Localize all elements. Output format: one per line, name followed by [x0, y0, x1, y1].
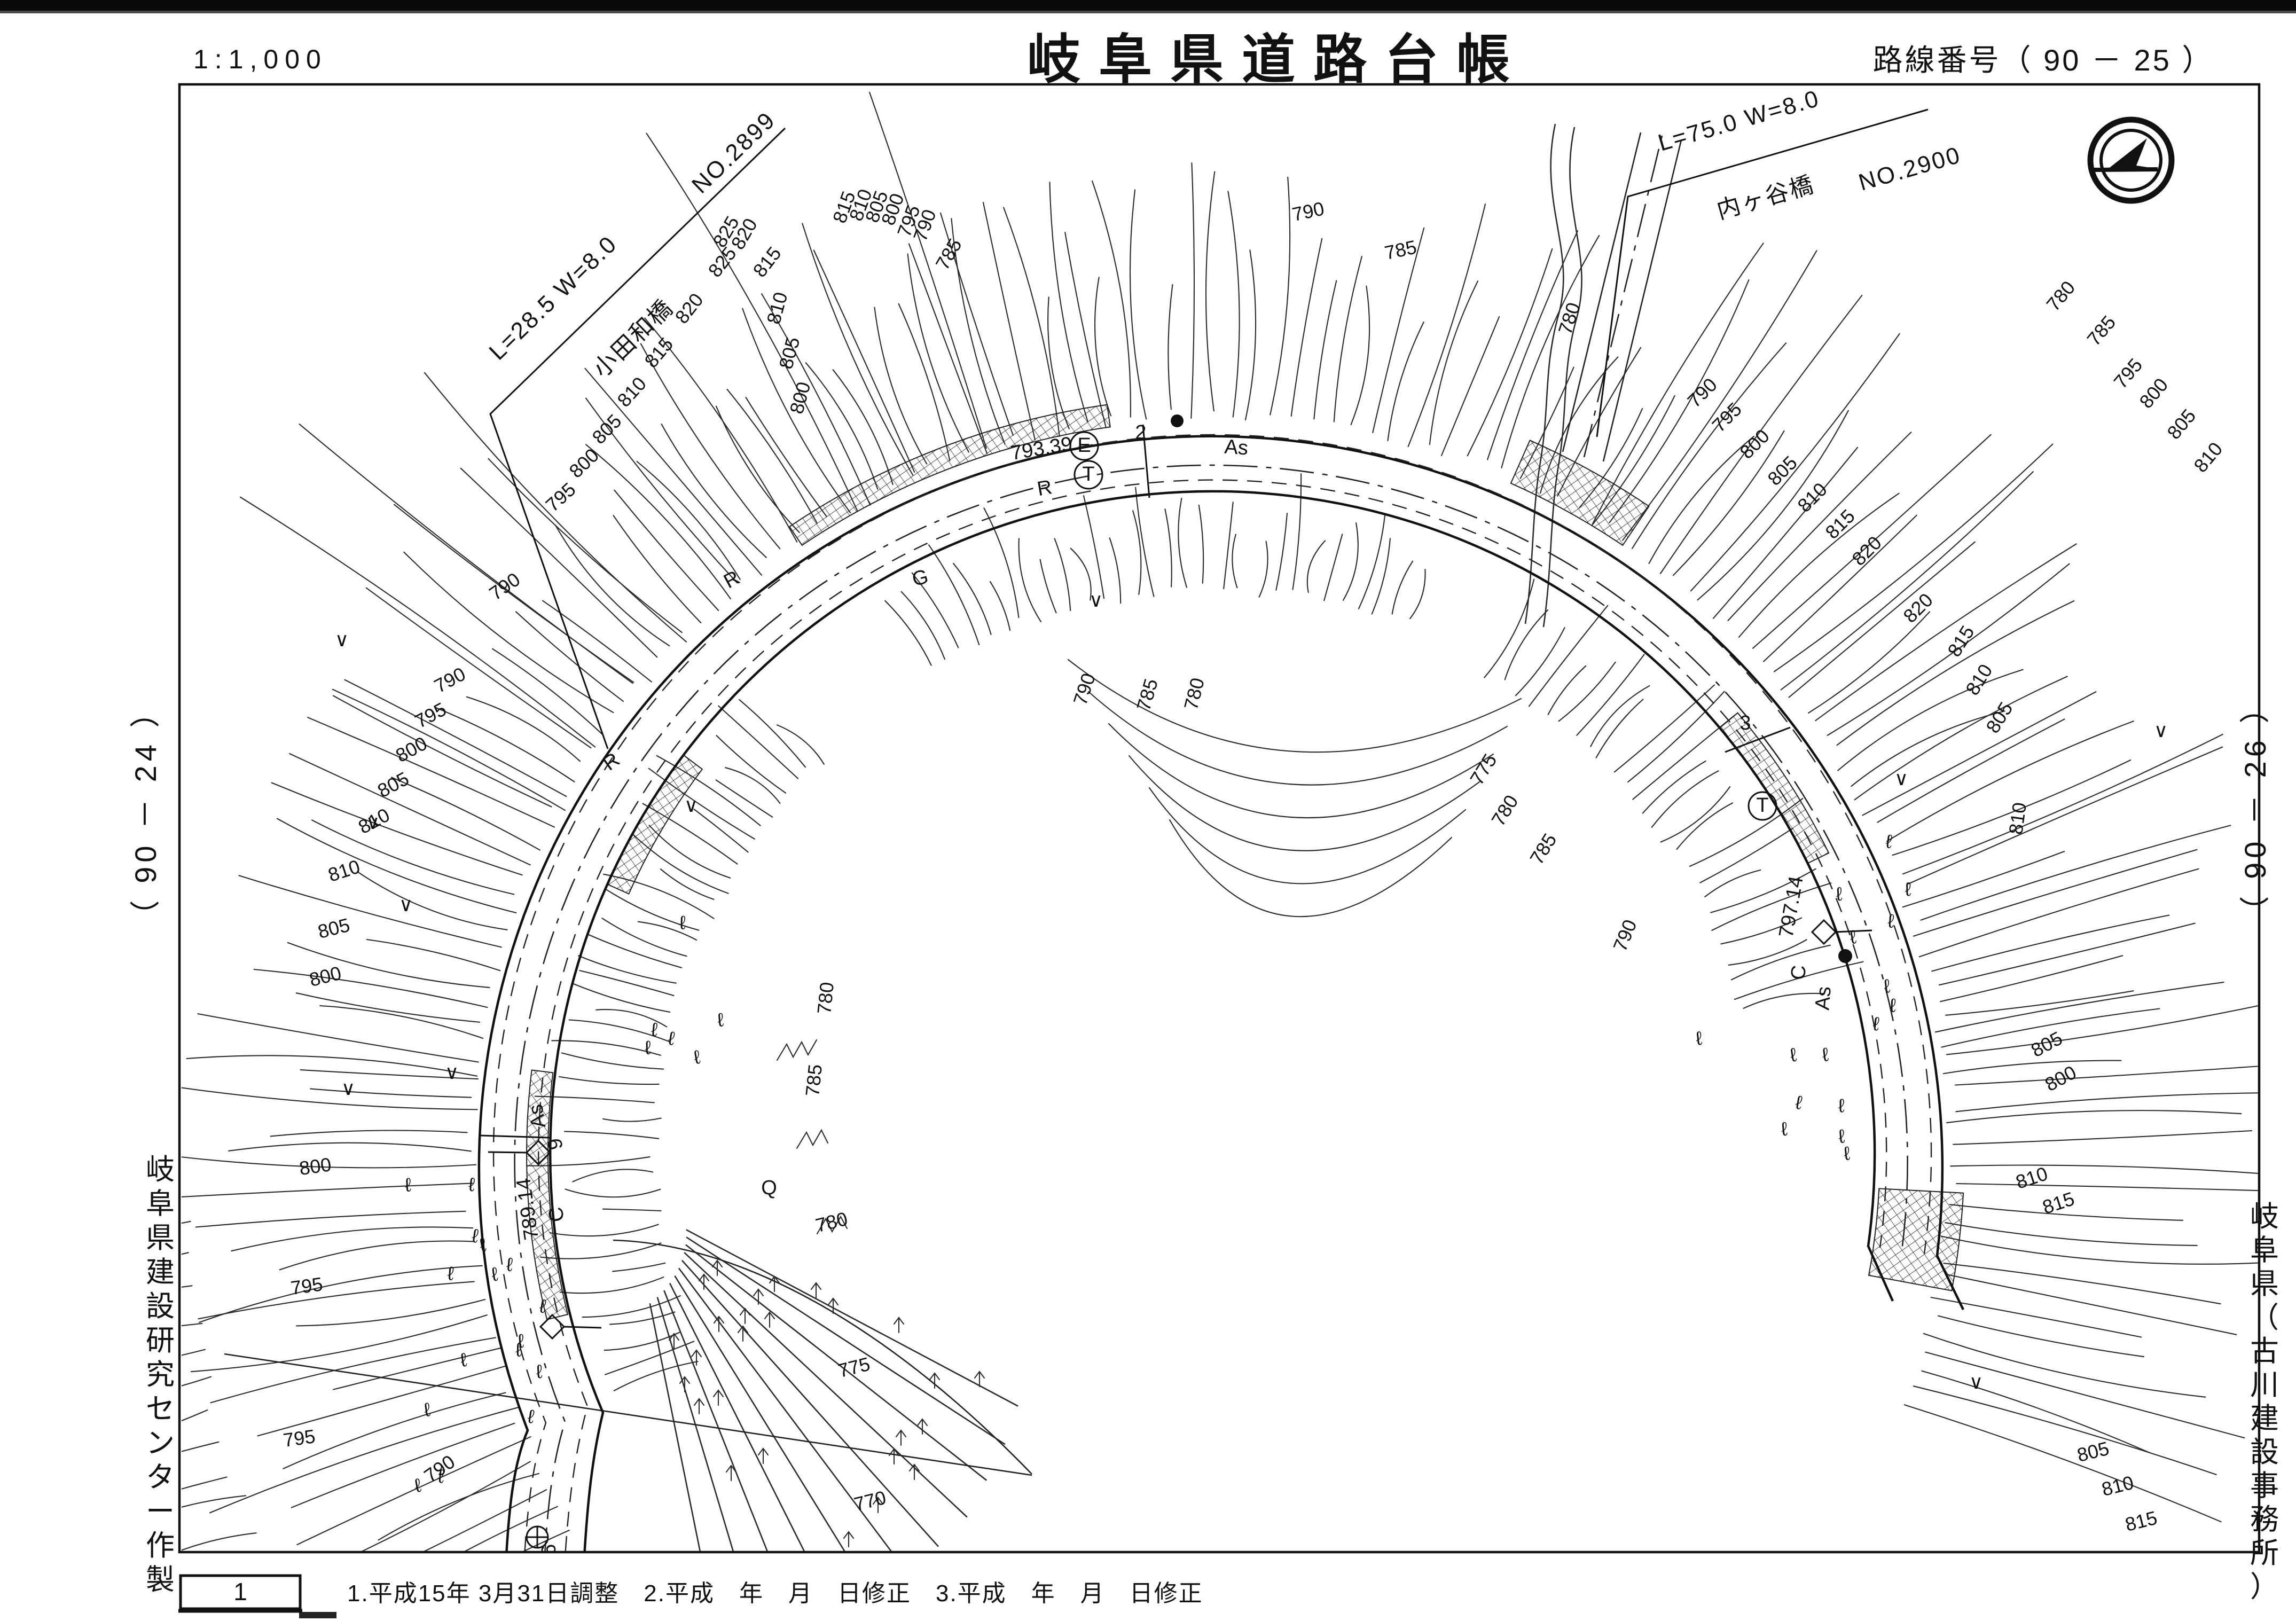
ledger-drawing: 1:1,000 岐阜県道路台帳 路線番号（ 90 － 25 ） （ 90 － 2…: [0, 0, 2296, 1621]
route-number: 路線番号（ 90 － 25 ）: [1873, 43, 2214, 77]
bush-symbol: ℓ: [645, 1037, 652, 1059]
svg-text:T: T: [1082, 463, 1094, 485]
contour-label: 780: [813, 981, 838, 1015]
svg-text:Q: Q: [761, 1177, 777, 1199]
svg-text:T: T: [1756, 794, 1768, 817]
road-label: [527, 1526, 548, 1548]
svg-text:As: As: [524, 1103, 550, 1130]
bush-symbol: ℓ: [1838, 1094, 1845, 1116]
road-label: As: [1811, 985, 1836, 1011]
road-label: As: [524, 1103, 550, 1130]
scan-artifact-bar: [0, 0, 2296, 11]
svg-text:E: E: [1077, 434, 1091, 457]
vegetation-symbol: ∨: [1894, 768, 1908, 789]
svg-text:C: C: [1787, 964, 1811, 981]
contour-label: 785: [801, 1063, 826, 1098]
contour-label: 810: [2004, 801, 2031, 836]
road-label: 3: [1739, 712, 1751, 734]
road-label: C: [1787, 964, 1811, 981]
contour-label: 795: [282, 1425, 317, 1451]
vegetation-symbol: ∨: [341, 1077, 355, 1099]
bush-symbol: ℓ: [679, 912, 686, 934]
bush-symbol: ℓ: [404, 1173, 411, 1195]
north-arrow-icon: [2090, 120, 2172, 201]
vegetation-symbol: ∨: [399, 894, 413, 915]
vegetation-symbol: ∨: [1969, 1371, 1983, 1393]
scan-artifact-line: [0, 11, 2296, 13]
revision-note: 1.平成15年 3月31日調整 2.平成 年 月 日修正 3.平成 年 月 日修…: [347, 1580, 1203, 1607]
vegetation-symbol: ∨: [445, 1061, 459, 1083]
adjacent-sheet-left: （ 90 － 24 ）: [129, 694, 162, 930]
road-label: 2: [1135, 421, 1146, 444]
sheet-number: 1: [233, 1578, 247, 1606]
svg-text:3: 3: [1739, 712, 1751, 734]
contour-label: 800: [298, 1153, 333, 1179]
contour-label: 795: [289, 1273, 324, 1299]
scan-artifact-blot: [299, 1612, 336, 1618]
adjacent-sheet-right: （ 90 － 26 ）: [2238, 690, 2272, 926]
vegetation-symbol: ∨: [2154, 719, 2168, 741]
road-ledger-sheet: 1:1,000 岐阜県道路台帳 路線番号（ 90 － 25 ） （ 90 － 2…: [0, 0, 2296, 1621]
road-label: Q: [761, 1177, 777, 1199]
utility-pole-dot: [1838, 949, 1852, 963]
utility-pole-dot: [1171, 414, 1184, 427]
bush-symbol: ℓ: [1905, 878, 1911, 900]
map-scale: 1:1,000: [193, 44, 327, 74]
vegetation-symbol: ∨: [1089, 589, 1103, 611]
svg-text:2: 2: [1135, 421, 1146, 444]
vegetation-symbol: ∨: [335, 629, 349, 651]
svg-text:As: As: [1224, 436, 1249, 460]
paper-background: [0, 0, 2296, 1621]
vegetation-symbol: ∨: [684, 794, 698, 816]
page-title: 岐阜県道路台帳: [1027, 30, 1528, 90]
road-label: As: [1224, 436, 1249, 460]
svg-text:As: As: [1811, 985, 1836, 1011]
